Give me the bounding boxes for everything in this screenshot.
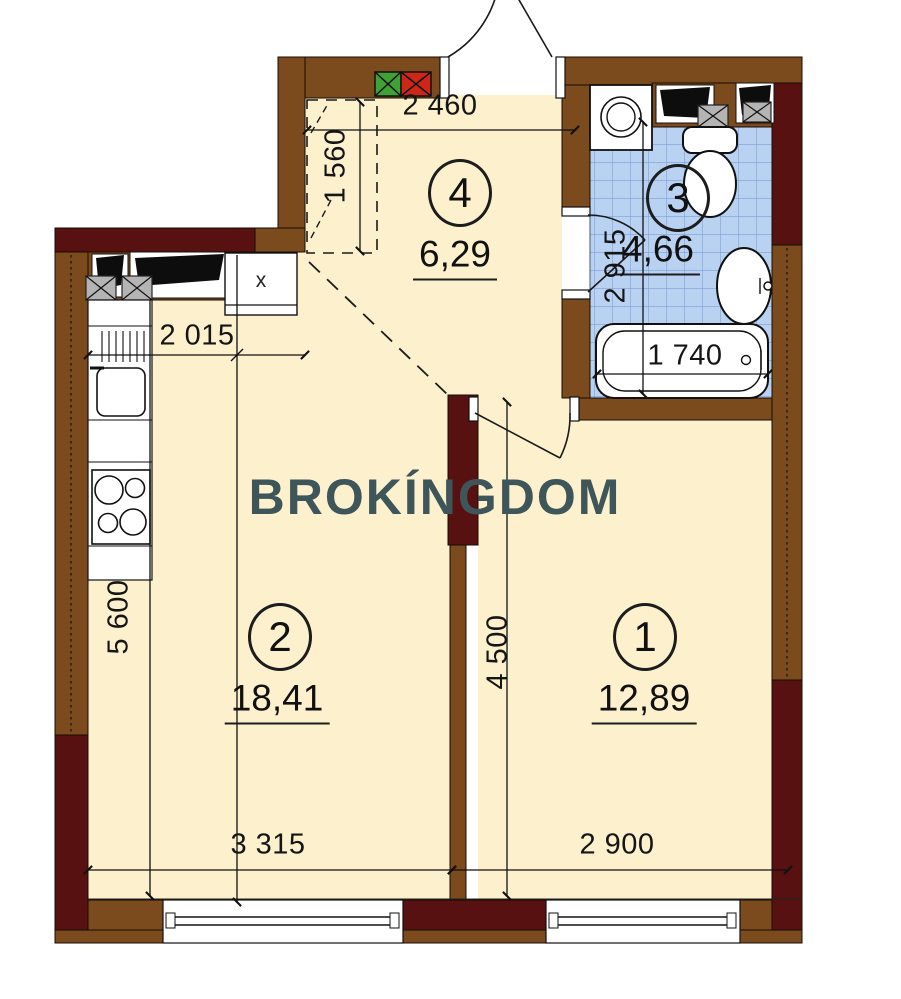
window-pier-center-dark: [403, 900, 546, 930]
dim-1740: 1 740: [647, 340, 722, 373]
room2-number: 2: [248, 603, 312, 671]
dim-1560: 1 560: [320, 128, 353, 203]
hall-left-wall: [278, 57, 305, 252]
bottom-band-left: [55, 930, 163, 943]
watermark: BROKÍNGDOM: [249, 468, 622, 526]
entrance-door: [448, 0, 552, 57]
doorway-floor: [478, 398, 570, 420]
bottom-band-right: [740, 930, 802, 943]
right-outer-wall-dark-top: [772, 83, 802, 245]
window-right: [546, 900, 740, 943]
rooms-partition-wall: [450, 545, 466, 900]
dim-3315: 3 315: [230, 829, 305, 862]
right-outer-wall-dark-bottom: [772, 680, 802, 930]
bathroom-sink: [717, 248, 772, 324]
floor-plan: BROKÍNGDOM 4 6,29 3 4,66 2 18,41 1 12,89…: [0, 0, 901, 999]
dim-5600: 5 600: [103, 579, 136, 654]
room2-area: 18,41: [225, 678, 330, 725]
bathroom-bottom-wall: [570, 398, 790, 420]
left-outer-wall: [55, 252, 88, 735]
room4-area: 6,29: [413, 234, 497, 281]
dim-2460: 2 460: [402, 90, 477, 123]
left-outer-wall-dark: [55, 735, 88, 930]
room1-number: 1: [613, 603, 677, 671]
dim-4500: 4 500: [482, 614, 515, 689]
window-pier-right: [740, 900, 777, 930]
bottom-band-center: [403, 930, 546, 943]
bathroom-left-wall-upper: [562, 85, 590, 215]
vent-shafts-kitchen: [86, 252, 228, 300]
cabinet-marker: x: [256, 269, 267, 293]
kitchen-top-wall-brown: [252, 228, 305, 252]
kitchen-top-wall-dark: [55, 228, 255, 252]
dim-2900: 2 900: [579, 829, 654, 862]
dim-2015: 2 015: [159, 320, 234, 353]
room3-number: 3: [646, 164, 710, 232]
window-pier-left: [88, 900, 163, 930]
stove: [92, 470, 150, 544]
kitchen-counter: [88, 300, 152, 580]
room4-number: 4: [428, 159, 492, 227]
dim-2915: 2 915: [600, 228, 633, 303]
window-left: [163, 900, 403, 943]
room1-area: 12,89: [592, 678, 697, 725]
bathroom-left-wall-lower: [562, 290, 590, 398]
top-wall-right-of-door: [556, 57, 802, 85]
